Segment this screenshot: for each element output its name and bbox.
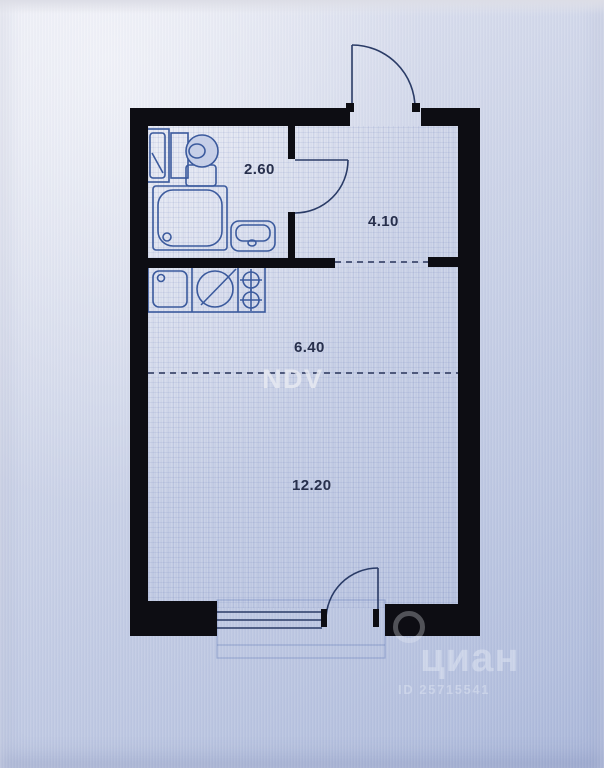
wall-bathroom-partition-lower [288,212,295,258]
round-appliance-slash [201,269,236,305]
toilet-tank [186,165,216,186]
round-appliance-fixture [197,271,233,307]
wall-left [130,108,148,636]
entrance-door-jamb-left [346,103,354,112]
area-label-hallway: 4.10 [368,213,399,230]
balcony-outline [217,600,385,658]
wall-hallway-stub [428,257,458,267]
area-label-kitchen: 6.40 [294,339,325,356]
balcony-door-jamb-right [373,609,379,627]
shower-cabin-inner [158,190,222,246]
kitchen-sink-tap [158,275,165,282]
washbasin-inner [236,225,270,241]
entrance-door-arc [352,45,415,108]
ndv-watermark: NDV [262,364,324,395]
bathroom-door-arc [295,160,348,213]
balcony-door-arc [326,568,378,620]
wall-bathroom-bottom [130,258,335,268]
wall-right [458,108,480,636]
wall-bathroom-partition-upper [288,126,295,159]
balcony-door-jamb-left [321,609,327,627]
wall-bottom-left [130,601,217,636]
entrance-door-jamb-right [412,103,420,112]
shower-drain [163,233,171,241]
listing-id-watermark: ID 25715541 [398,682,490,697]
floor-plan-photo: 2.60 4.10 6.40 12.20 NDV циан ID 2571554… [0,0,604,768]
toilet-bowl [186,135,218,167]
wall-top-left [130,108,350,126]
area-label-living: 12.20 [292,477,332,494]
area-label-bathroom: 2.60 [244,161,275,178]
bathroom-cabinet-slash [152,153,163,173]
cian-watermark: циан [420,636,520,681]
